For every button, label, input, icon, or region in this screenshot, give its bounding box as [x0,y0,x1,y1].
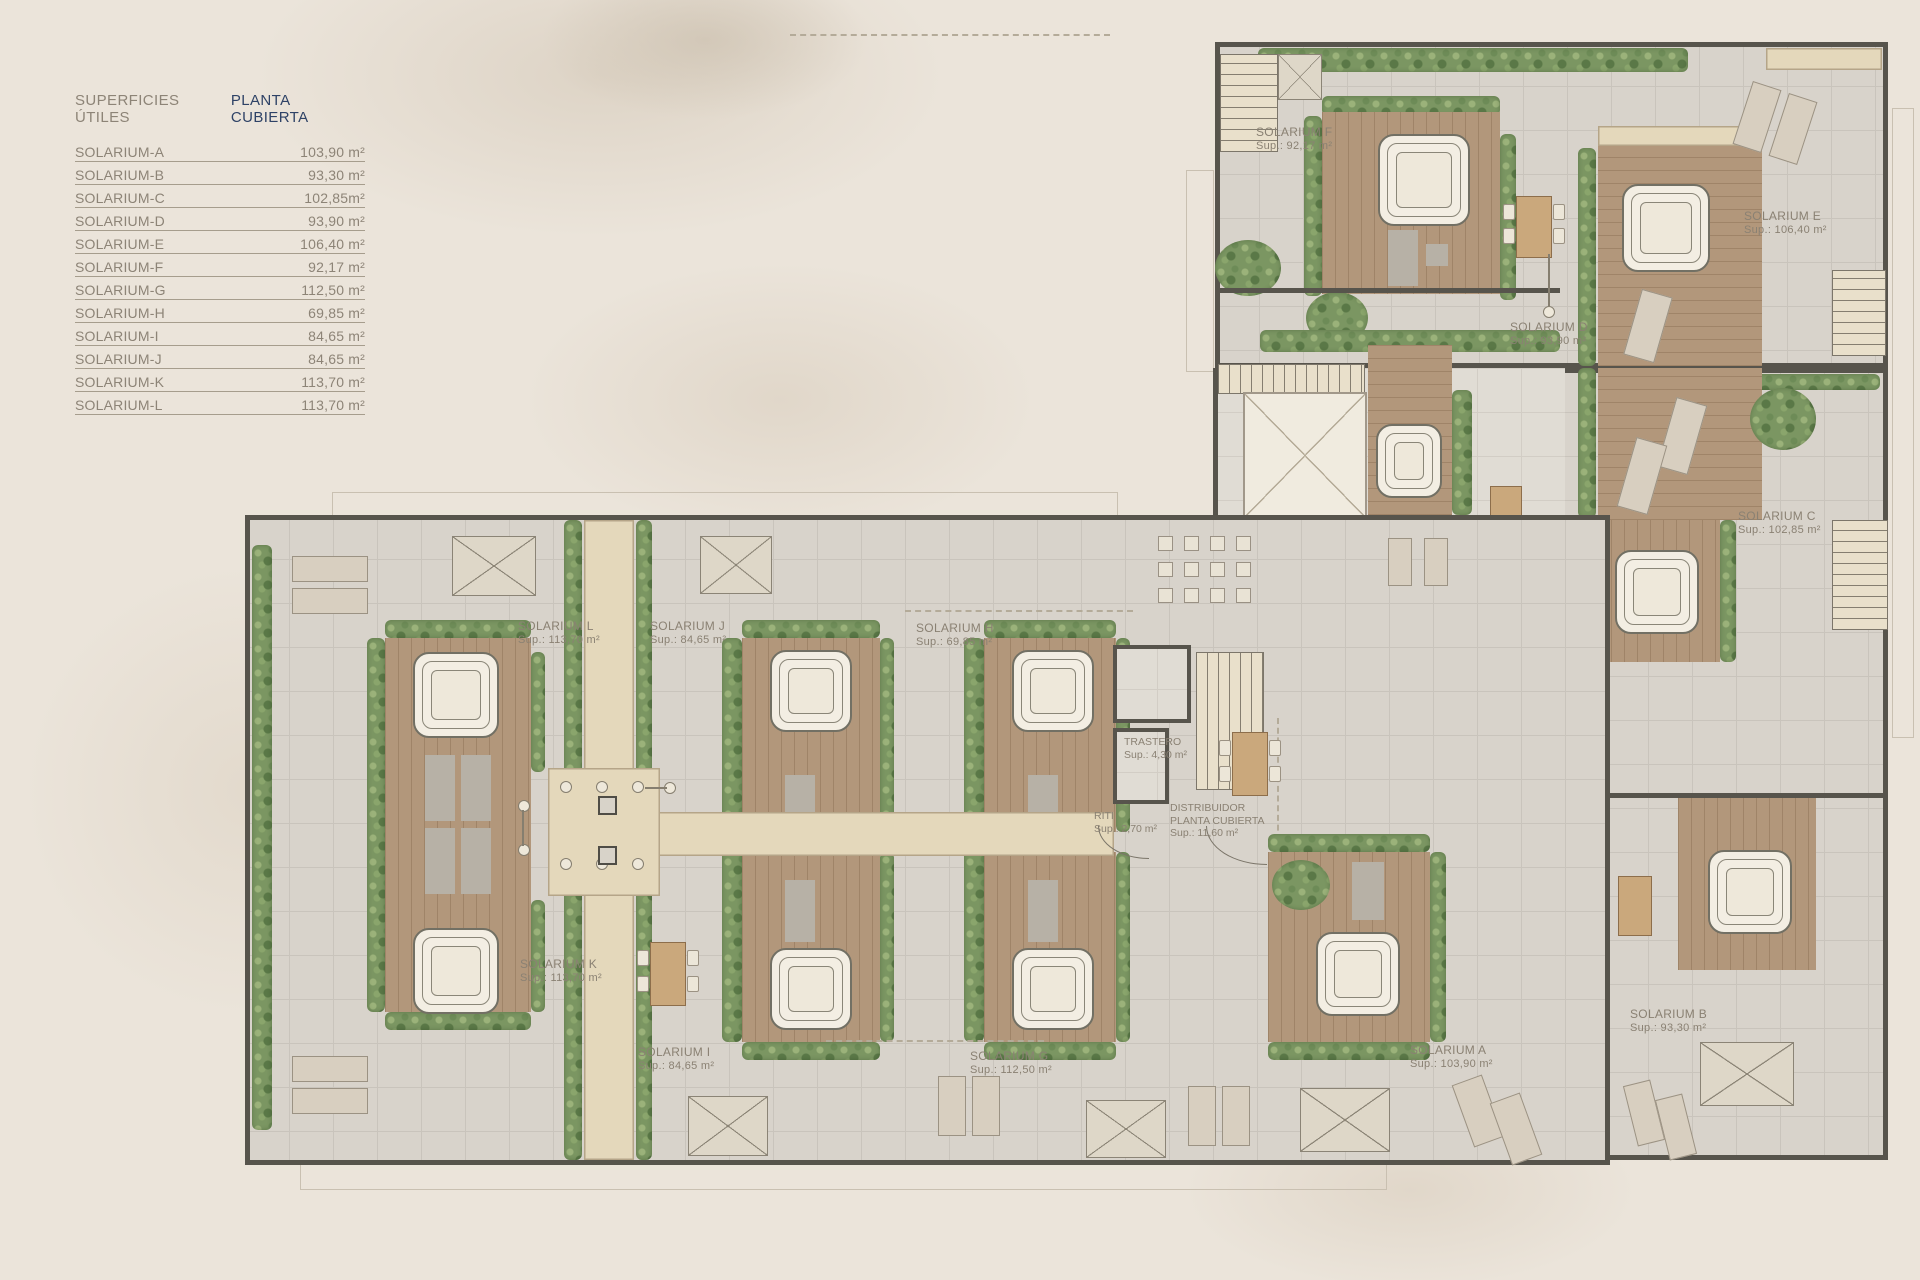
jacuzzi [1615,550,1699,634]
setback-outline [1892,108,1914,738]
hedge [880,852,894,1042]
unit-label-solarium-j: SOLARIUM J Sup.: 84,65 m² [650,620,726,646]
legend-value: 93,30 m² [308,167,365,183]
unit-name: SOLARIUM F [1256,126,1332,140]
skylight [1086,1100,1166,1158]
unit-label-solarium-k: SOLARIUM K Sup.: 113,70 m² [520,958,602,984]
unit-name: SOLARIUM D [1510,321,1588,335]
legend-label: SOLARIUM-G [75,282,166,298]
dimension-line [522,810,524,846]
stool [1424,538,1448,586]
unit-label-solarium-h: SOLARIUM H Sup.: 69,85 m² [916,622,994,648]
unit-area: Sup.: 113,70 m² [518,634,600,647]
hedge [1578,368,1596,518]
chair [1503,228,1515,244]
leader-line [645,787,667,789]
hedge [385,1012,531,1030]
unit-area: Sup.: 84,65 m² [638,1060,714,1073]
sun-lounger [1222,1086,1250,1146]
unit-label-solarium-e: SOLARIUM E Sup.: 106,40 m² [1744,210,1827,236]
legend-row: SOLARIUM-A103,90 m² [75,139,365,162]
room-label-distribuidor: DISTRIBUIDOR PLANTA CUBIERTA Sup.: 11,60… [1170,802,1265,840]
dashed-line [905,610,1133,612]
setback-outline [300,1162,1387,1190]
chair [637,950,649,966]
deck-mat [785,880,815,942]
hedge [531,900,545,1012]
skylight [688,1096,768,1156]
hedge [880,638,894,832]
unit-area: Sup.: 69,85 m² [916,636,994,649]
kitchen-unit [1236,588,1251,603]
plaza-dot [596,781,608,793]
dining-table [1232,732,1268,796]
sun-lounger [292,556,368,582]
legend-label: SOLARIUM-K [75,374,164,390]
unit-area: Sup.: 103,90 m² [1410,1058,1493,1071]
legend-row: SOLARIUM-K113,70 m² [75,369,365,392]
legend-value: 113,70 m² [301,397,365,413]
background-stain [540,0,870,120]
unit-name: SOLARIUM L [518,620,600,634]
unit-label-solarium-d: SOLARIUM D Sup.: 93,90 m² [1510,321,1588,347]
hedge [1430,852,1446,1042]
kitchen-unit [1236,562,1251,577]
unit-area: Sup.: 93,30 m² [1630,1022,1707,1035]
legend-value: 69,85 m² [308,305,365,321]
kitchen-unit [1184,588,1199,603]
sun-lounger [1188,1086,1216,1146]
legend-row: SOLARIUM-G112,50 m² [75,277,365,300]
dimension-dot [518,844,530,856]
plaza-dot [560,781,572,793]
stair [1832,520,1888,630]
stool [1388,538,1412,586]
unit-name: SOLARIUM K [520,958,602,972]
deck-mat [1352,862,1384,920]
skylight [1300,1088,1390,1152]
deck-mat [461,755,491,821]
room-name: RITI [1094,810,1157,823]
legend-value: 84,65 m² [308,328,365,344]
room-trastero [1113,645,1191,723]
room-area: Sup.: 4,30 m² [1124,749,1187,762]
legend-value: 93,90 m² [308,213,365,229]
jacuzzi [1012,948,1094,1030]
hedge [531,652,545,772]
floor-plan-sheet: SOLARIUM F Sup.: 92,17 m² SOLARIUM E Sup… [0,0,1920,1280]
palm-cluster [1272,860,1330,910]
hedge [1452,390,1472,515]
legend-row: SOLARIUM-J84,65 m² [75,346,365,369]
deck-mat [1426,244,1448,266]
jacuzzi [770,650,852,732]
room-name: TRASTERO [1124,736,1187,749]
jacuzzi [1622,184,1710,272]
skylight [452,536,536,596]
stair-landing [1278,54,1322,100]
wall-segment [1215,288,1560,293]
legend-label: SOLARIUM-I [75,328,159,344]
kitchen-unit [1184,536,1199,551]
deck-mat [1388,230,1418,286]
unit-name: SOLARIUM C [1738,510,1821,524]
kitchen-unit [1210,588,1225,603]
unit-name: SOLARIUM B [1630,1008,1707,1022]
legend-label: SOLARIUM-J [75,351,162,367]
dashed-line [826,1040,1044,1042]
legend-label: SOLARIUM-H [75,305,165,321]
unit-name: SOLARIUM A [1410,1044,1493,1058]
chair [1269,740,1281,756]
legend-value: 92,17 m² [308,259,365,275]
legend-row: SOLARIUM-I84,65 m² [75,323,365,346]
unit-area: Sup.: 92,17 m² [1256,140,1332,153]
legend-plan-name: PLANTA CUBIERTA [231,92,365,126]
legend-label: SOLARIUM-A [75,144,164,160]
kitchen-unit [1210,562,1225,577]
hedge [385,620,531,638]
hedge [1268,1042,1430,1060]
deck-mat [425,828,455,894]
kitchen-unit [1158,562,1173,577]
legend-label: SOLARIUM-E [75,236,164,252]
legend-label: SOLARIUM-B [75,167,164,183]
kitchen-unit [1158,536,1173,551]
chair [687,976,699,992]
unit-area: Sup.: 106,40 m² [1744,224,1827,237]
stair [1218,364,1365,394]
plaza-dot [632,858,644,870]
stair [1832,270,1886,356]
unit-label-solarium-i: SOLARIUM I Sup.: 84,65 m² [638,1046,714,1072]
legend-header: SUPERFICIES ÚTILES PLANTA CUBIERTA [75,92,365,126]
unit-name: SOLARIUM I [638,1046,714,1060]
chair [1219,766,1231,782]
walkway [658,812,1114,856]
chair [1503,204,1515,220]
unit-area: Sup.: 102,85 m² [1738,524,1821,537]
hedge [742,620,880,638]
jacuzzi [1378,134,1470,226]
dining-table [1516,196,1552,258]
dining-table [650,942,686,1006]
unit-label-solarium-g: SOLARIUM G Sup.: 112,50 m² [970,1050,1052,1076]
deck-mat [1028,880,1058,942]
dimension-dot [1543,306,1555,318]
legend: SUPERFICIES ÚTILES PLANTA CUBIERTA SOLAR… [75,92,365,415]
unit-area: Sup.: 112,50 m² [970,1064,1052,1077]
plaza-dot [632,781,644,793]
legend-row: SOLARIUM-C102,85m² [75,185,365,208]
legend-value: 106,40 m² [300,236,365,252]
legend-value: 113,70 m² [301,374,365,390]
deck-mat [461,828,491,894]
jacuzzi [413,652,499,738]
legend-label: SOLARIUM-L [75,397,163,413]
legend-value: 102,85m² [304,190,365,206]
unit-name: SOLARIUM H [916,622,994,636]
plaza-dot [560,858,572,870]
hedge [367,638,385,1012]
room-label-riti: RITI Sup.: 2,70 m² [1094,810,1157,835]
legend-row: SOLARIUM-L113,70 m² [75,392,365,415]
legend-row: SOLARIUM-E106,40 m² [75,231,365,254]
sun-lounger [292,1088,368,1114]
kitchen-unit [1236,536,1251,551]
jacuzzi [1376,424,1442,498]
hedge [1268,834,1430,852]
room-area: Sup.: 2,70 m² [1094,823,1157,836]
jacuzzi [1012,650,1094,732]
jacuzzi [770,948,852,1030]
chair [637,976,649,992]
unit-name: SOLARIUM J [650,620,726,634]
room-name-line2: PLANTA CUBIERTA [1170,815,1265,828]
jacuzzi [413,928,499,1014]
hedge [742,1042,880,1060]
dining-table [1618,876,1652,936]
unit-area: Sup.: 113,70 m² [520,972,602,985]
sun-lounger [292,588,368,614]
unit-label-solarium-a: SOLARIUM A Sup.: 103,90 m² [1410,1044,1493,1070]
room-area: Sup.: 11,60 m² [1170,827,1265,840]
kitchen-unit [1210,536,1225,551]
skylight [1700,1042,1794,1106]
legend-value: 112,50 m² [301,282,365,298]
dashed-line [1277,718,1279,850]
sun-lounger [938,1076,966,1136]
unit-label-solarium-l: SOLARIUM L Sup.: 113,70 m² [518,620,600,646]
legend-row: SOLARIUM-B93,30 m² [75,162,365,185]
skylight [700,536,772,594]
hedge [252,545,272,1130]
fire-pit [598,846,617,865]
legend-row: SOLARIUM-D93,90 m² [75,208,365,231]
leader-line [1548,254,1550,306]
unit-area: Sup.: 84,65 m² [650,634,726,647]
legend-title: SUPERFICIES ÚTILES [75,92,231,126]
legend-label: SOLARIUM-D [75,213,165,229]
sun-lounger [972,1076,1000,1136]
kitchen-unit [1158,588,1173,603]
dimension-dot [518,800,530,812]
jacuzzi [1708,850,1792,934]
hedge [984,620,1116,638]
unit-label-solarium-b: SOLARIUM B Sup.: 93,30 m² [1630,1008,1707,1034]
hedge [1258,48,1688,72]
chair [1269,766,1281,782]
chair [687,950,699,966]
legend-value: 84,65 m² [308,351,365,367]
patio-void [1243,392,1367,519]
legend-row: SOLARIUM-H69,85 m² [75,300,365,323]
hedge [1720,520,1736,662]
room-name: DISTRIBUIDOR [1170,802,1265,815]
setback-outline [1186,170,1214,372]
legend-row: SOLARIUM-F92,17 m² [75,254,365,277]
deck-mat [425,755,455,821]
unit-name: SOLARIUM G [970,1050,1052,1064]
chair [1553,204,1565,220]
unit-area: Sup.: 93,90 m² [1510,335,1588,348]
kitchen-unit [1184,562,1199,577]
dashed-line [790,34,1110,36]
chair [1553,228,1565,244]
chair [1219,740,1231,756]
legend-label: SOLARIUM-F [75,259,163,275]
hedge [1116,852,1130,1042]
unit-label-solarium-c: SOLARIUM C Sup.: 102,85 m² [1738,510,1821,536]
unit-name: SOLARIUM E [1744,210,1827,224]
fire-pit [598,796,617,815]
jacuzzi [1316,932,1400,1016]
legend-value: 103,90 m² [300,144,365,160]
palm-cluster [1750,388,1816,450]
legend-label: SOLARIUM-C [75,190,165,206]
sun-lounger [292,1056,368,1082]
room-label-trastero: TRASTERO Sup.: 4,30 m² [1124,736,1187,761]
pergola-strip [1766,48,1882,70]
unit-label-solarium-f: SOLARIUM F Sup.: 92,17 m² [1256,126,1332,152]
